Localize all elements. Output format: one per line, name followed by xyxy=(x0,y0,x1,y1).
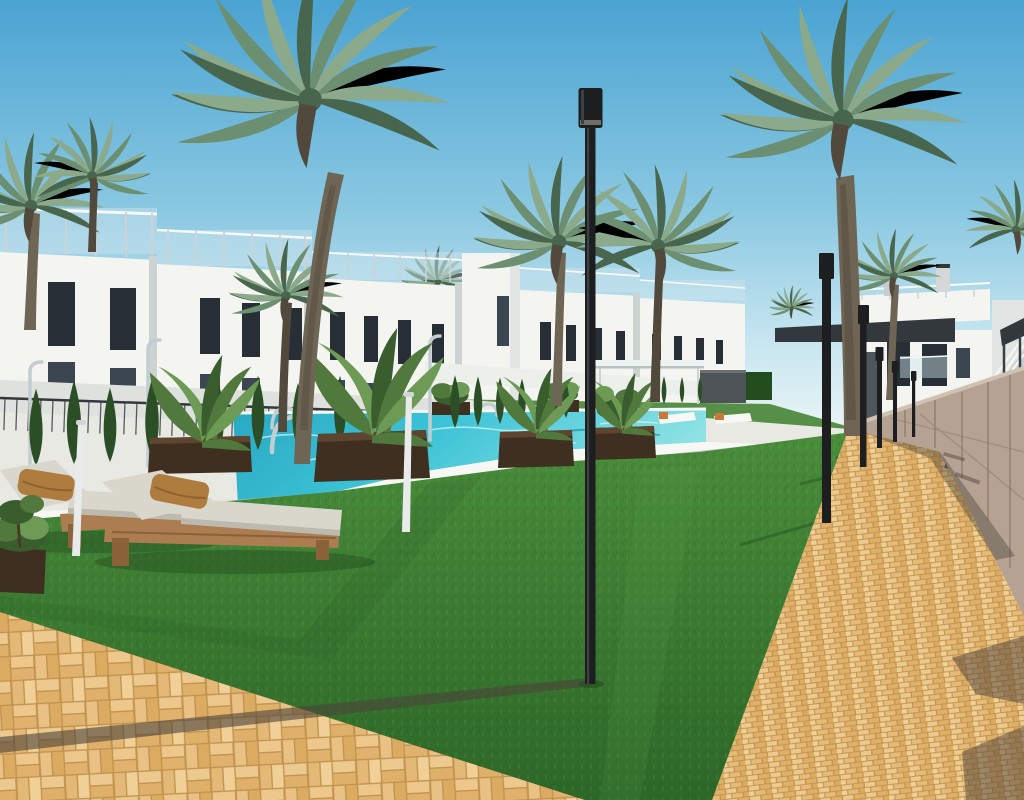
architectural-render xyxy=(0,0,1024,800)
chimney-icon xyxy=(936,266,950,292)
balcony-glass-railing xyxy=(900,356,948,378)
scene-canvas xyxy=(0,0,1024,800)
storage-box xyxy=(700,370,746,403)
